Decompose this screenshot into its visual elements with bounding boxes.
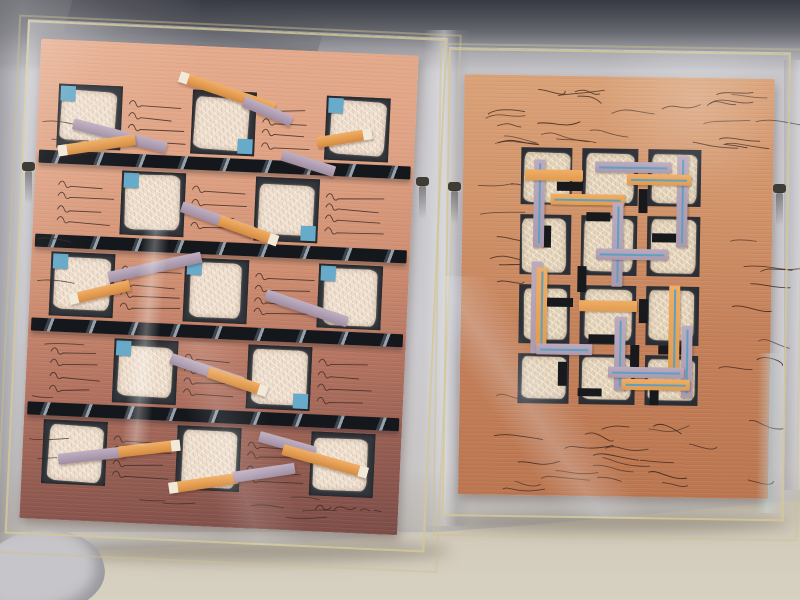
frame-clip-shadow bbox=[419, 185, 426, 219]
left-acrylic-frame bbox=[5, 20, 448, 553]
right-acrylic-frame bbox=[442, 48, 791, 521]
frame-clip-shadow bbox=[451, 190, 458, 224]
acrylic-depth-edge bbox=[0, 15, 462, 574]
acrylic-depth-edge bbox=[432, 43, 800, 542]
photo-scene bbox=[0, 0, 800, 600]
frame-clip-shadow bbox=[25, 170, 32, 204]
frame-clip-shadow bbox=[776, 192, 783, 226]
